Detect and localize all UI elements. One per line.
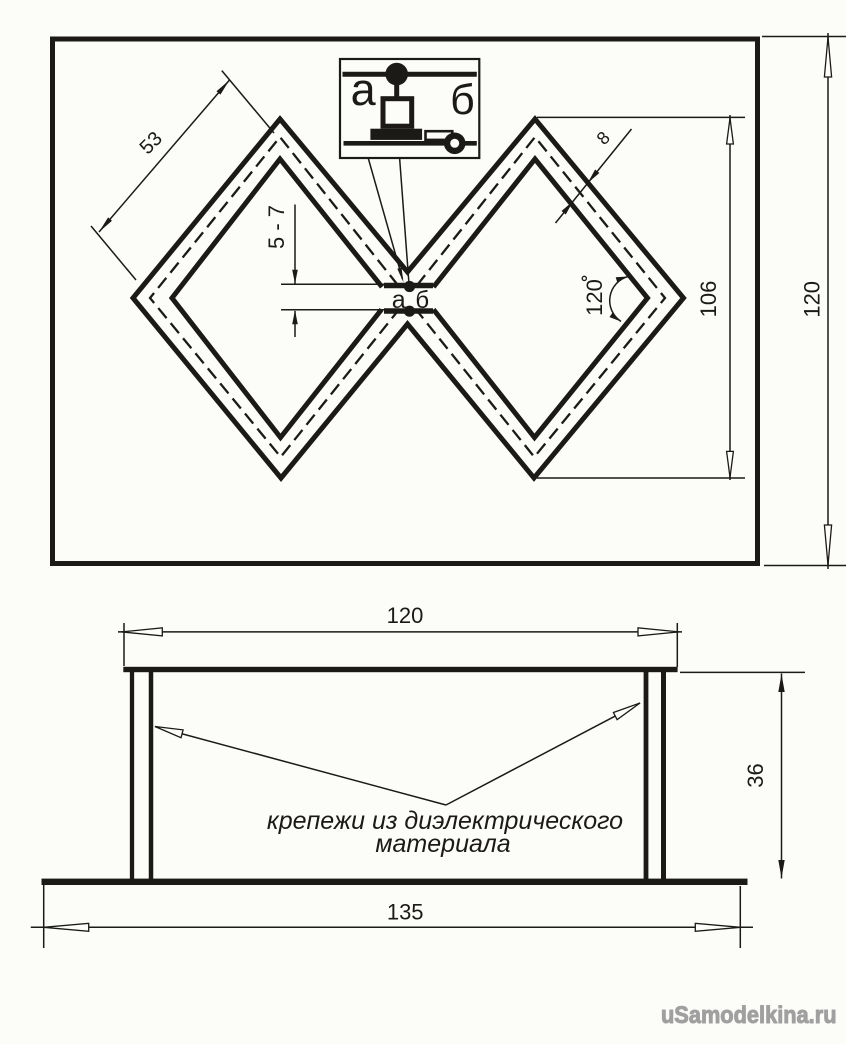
svg-text:135: 135 [387, 899, 424, 924]
svg-text:120: 120 [582, 279, 607, 316]
svg-text:106: 106 [696, 281, 721, 318]
svg-text:uSamodelkina.ru: uSamodelkina.ru [661, 1002, 837, 1029]
svg-text:120: 120 [387, 603, 424, 628]
svg-text:120: 120 [800, 281, 825, 318]
svg-text:а: а [392, 286, 406, 314]
svg-text:5 - 7: 5 - 7 [264, 205, 289, 249]
svg-text:материала: материала [375, 830, 510, 858]
svg-text:б: б [415, 287, 429, 314]
svg-text:36: 36 [743, 763, 768, 787]
svg-text:а: а [351, 64, 377, 115]
svg-text:б: б [450, 76, 475, 124]
